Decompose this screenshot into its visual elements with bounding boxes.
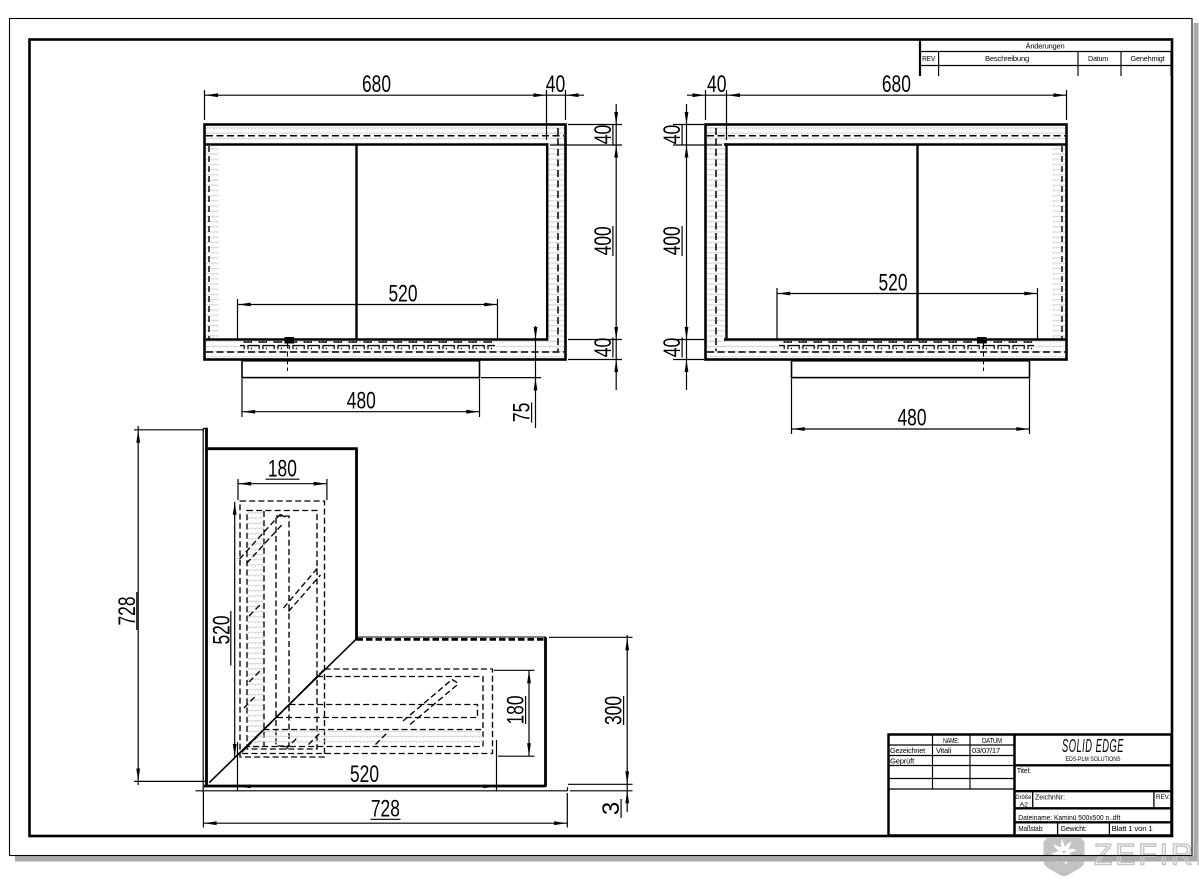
svg-text:REV: REV [922, 54, 935, 63]
svg-text:680: 680 [362, 71, 391, 98]
svg-text:Dateiname: Kaminü 500x500 n..d: Dateiname: Kaminü 500x500 n..dft [1018, 813, 1121, 822]
svg-text:Titel:: Titel: [1017, 766, 1031, 775]
svg-text:Änderungen: Änderungen [1026, 41, 1065, 50]
svg-text:SOLID EDGE: SOLID EDGE [1062, 736, 1124, 756]
svg-text:Vitali: Vitali [936, 746, 952, 755]
svg-text:Datum: Datum [1088, 54, 1108, 63]
svg-text:NAME:: NAME: [943, 736, 959, 745]
svg-text:520: 520 [879, 269, 908, 296]
svg-text:520: 520 [389, 280, 418, 307]
svg-text:Beschreibung: Beschreibung [985, 54, 1029, 63]
svg-text:A2: A2 [1020, 801, 1029, 808]
svg-text:180: 180 [268, 455, 297, 482]
svg-text:480: 480 [898, 405, 927, 432]
svg-text:Maßstab:: Maßstab: [1018, 824, 1043, 833]
svg-text:03/07/17: 03/07/17 [972, 746, 1000, 755]
svg-text:Gezeichnet: Gezeichnet [890, 746, 925, 755]
svg-text:REV.: REV. [1156, 794, 1170, 801]
svg-text:480: 480 [347, 387, 376, 414]
svg-text:Gewicht:: Gewicht: [1061, 824, 1087, 833]
svg-text:DATUM: DATUM [982, 736, 1002, 745]
svg-text:Geprüft: Geprüft [890, 757, 914, 766]
svg-text:Größe: Größe [1015, 794, 1031, 801]
svg-text:520: 520 [209, 616, 236, 645]
svg-text:40: 40 [546, 71, 566, 98]
svg-text:ZeichnNr:: ZeichnNr: [1035, 792, 1065, 801]
svg-text:680: 680 [882, 71, 911, 98]
svg-text:728: 728 [371, 796, 400, 823]
svg-text:40: 40 [707, 71, 727, 98]
svg-text:EDS-PLM SOLUTIONS: EDS-PLM SOLUTIONS [1066, 756, 1121, 763]
svg-text:Blatt 1 von 1: Blatt 1 von 1 [1112, 824, 1153, 833]
svg-text:520: 520 [350, 761, 379, 788]
svg-text:Genehmigt: Genehmigt [1131, 54, 1165, 63]
